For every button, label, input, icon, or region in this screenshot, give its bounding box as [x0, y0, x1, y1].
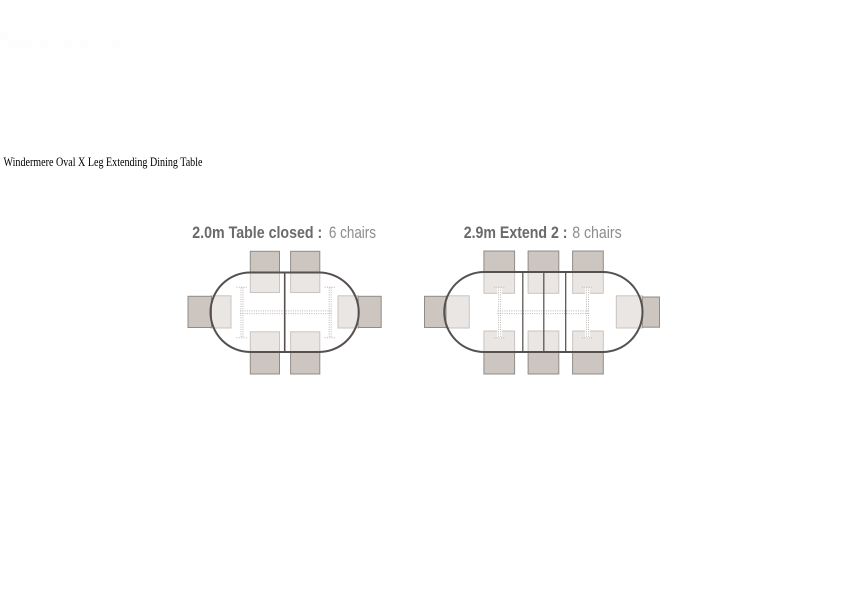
svg-text:2.0m Table closed :: 2.0m Table closed :: [192, 224, 322, 242]
svg-text:Windermere Oval X Leg Extendin: Windermere Oval X Leg Extending Dining T…: [4, 155, 203, 169]
svg-text:8 chairs: 8 chairs: [572, 224, 622, 242]
svg-text:6 chairs: 6 chairs: [329, 224, 376, 242]
svg-text:2.9m Extend 2 :: 2.9m Extend 2 :: [464, 224, 568, 242]
